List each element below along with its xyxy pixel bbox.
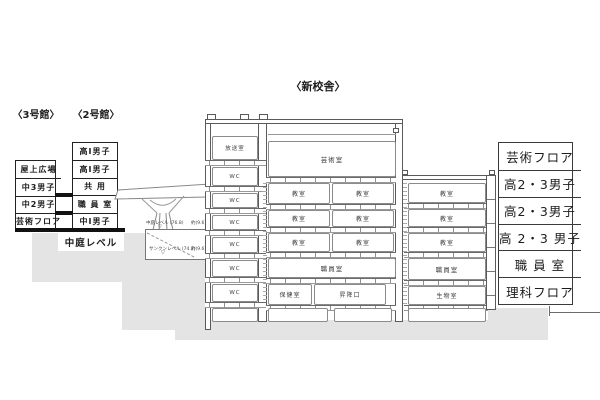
parapet-roofline	[205, 119, 403, 124]
dimension-lower: 約(9.6)	[191, 246, 206, 252]
room-wc: WC	[212, 215, 258, 230]
room-staff-right: 職員室	[408, 258, 486, 280]
sunken-court-box	[145, 229, 206, 260]
level-marker-icon: ▽	[161, 251, 165, 256]
room-classroom: 教室	[332, 233, 394, 252]
floor-label: 高2・3男子	[499, 170, 581, 197]
room-biology: 生物室	[408, 286, 486, 305]
floor-label: 芸術フロア	[499, 143, 581, 170]
floor-slab	[205, 277, 266, 283]
courtyard-level-elevation: 中庭レベル (76.8)	[146, 220, 183, 226]
room-wc: WC	[212, 167, 258, 186]
floor-slab	[205, 208, 266, 214]
slope-dashed-line	[146, 230, 205, 259]
foundation-box	[334, 308, 392, 322]
building2-row: 高Ⅰ男子	[73, 160, 117, 177]
floor-label: 高 2・3 男子	[499, 224, 581, 251]
foundation-box	[212, 308, 258, 322]
sunken-level-elevation: サンクンレベル (74.2)	[149, 246, 195, 252]
room-classroom: 教室	[332, 210, 394, 227]
outer-wall-left	[205, 120, 211, 330]
connector-bar	[55, 211, 73, 215]
ground-right	[488, 308, 548, 322]
floor-slab	[205, 160, 266, 166]
room-classroom: 教室	[408, 233, 486, 252]
building2-title: 〈2号館〉	[71, 106, 121, 121]
floor-label: 理科フロア	[499, 277, 581, 304]
room-classroom: 教室	[268, 210, 330, 227]
floor-label: 職 員 室	[499, 250, 581, 277]
wall-hatching	[403, 183, 407, 305]
art-room-ceiling-line	[268, 134, 396, 135]
dimension-upper: 約(9.6)	[191, 220, 206, 226]
room-wc: WC	[212, 260, 258, 277]
building2-row: 職 員 室	[73, 195, 117, 212]
room-classroom: 教室	[268, 233, 330, 252]
wall-central-right	[395, 121, 403, 322]
parapet-bump	[259, 114, 268, 120]
room-classroom: 教室	[332, 183, 394, 204]
room-broadcast: 放送室	[212, 136, 258, 160]
wall-hatching	[263, 183, 267, 303]
connector-bar	[55, 193, 73, 197]
parapet-bump	[393, 128, 399, 133]
room-classroom: 教室	[408, 209, 486, 227]
floor-label-table: 芸術フロア 高2・3男子 高2・3男子 高 2・3 男子 職 員 室 理科フロア	[498, 142, 573, 305]
building3-title: 〈3号館〉	[11, 106, 61, 121]
building3-row: 屋上広場	[16, 161, 61, 178]
room-wc: WC	[212, 284, 258, 302]
right-roofline	[402, 175, 496, 180]
room-staff: 職員室	[268, 258, 396, 278]
floor-label: 高2・3男子	[499, 197, 581, 224]
room-infirmary: 保健室	[268, 284, 312, 305]
building3-table: 屋上広場 中3男子 中2男子 芸術フロア	[15, 160, 56, 231]
parapet-bump	[207, 114, 216, 120]
floor-slab	[205, 230, 266, 236]
parapet-bump	[402, 170, 408, 175]
level-marker-icon: ▽	[158, 225, 162, 230]
room-classroom: 教室	[268, 183, 330, 204]
ground-under-building	[175, 320, 548, 340]
foundation-box	[268, 308, 328, 322]
floor-slab	[205, 186, 266, 192]
room-classroom: 教室	[408, 183, 486, 203]
section-drawing: 〈新校舎〉 〈3号館〉 〈2号館〉 屋上広場 中3男子 中2男子 芸術フロア 高…	[0, 0, 600, 400]
foundation-box	[408, 308, 486, 322]
room-wc: WC	[212, 237, 258, 253]
floor-slab	[205, 253, 266, 259]
room-entrance: 昇降口	[314, 284, 386, 305]
building2-row: 共 用	[73, 178, 117, 195]
courtyard-level-line	[15, 228, 125, 232]
room-wc: WC	[212, 193, 258, 208]
outer-wall-right	[486, 175, 496, 310]
parapet-bump	[240, 114, 249, 120]
ground-level-tick	[549, 306, 550, 316]
building2-row: 高Ⅰ男子	[73, 143, 117, 160]
courtyard-level-label: 中庭レベル	[58, 233, 124, 251]
ground-level-line	[550, 312, 600, 313]
room-art: 芸術室	[268, 141, 396, 177]
main-title: 〈新校舎〉	[283, 78, 353, 94]
